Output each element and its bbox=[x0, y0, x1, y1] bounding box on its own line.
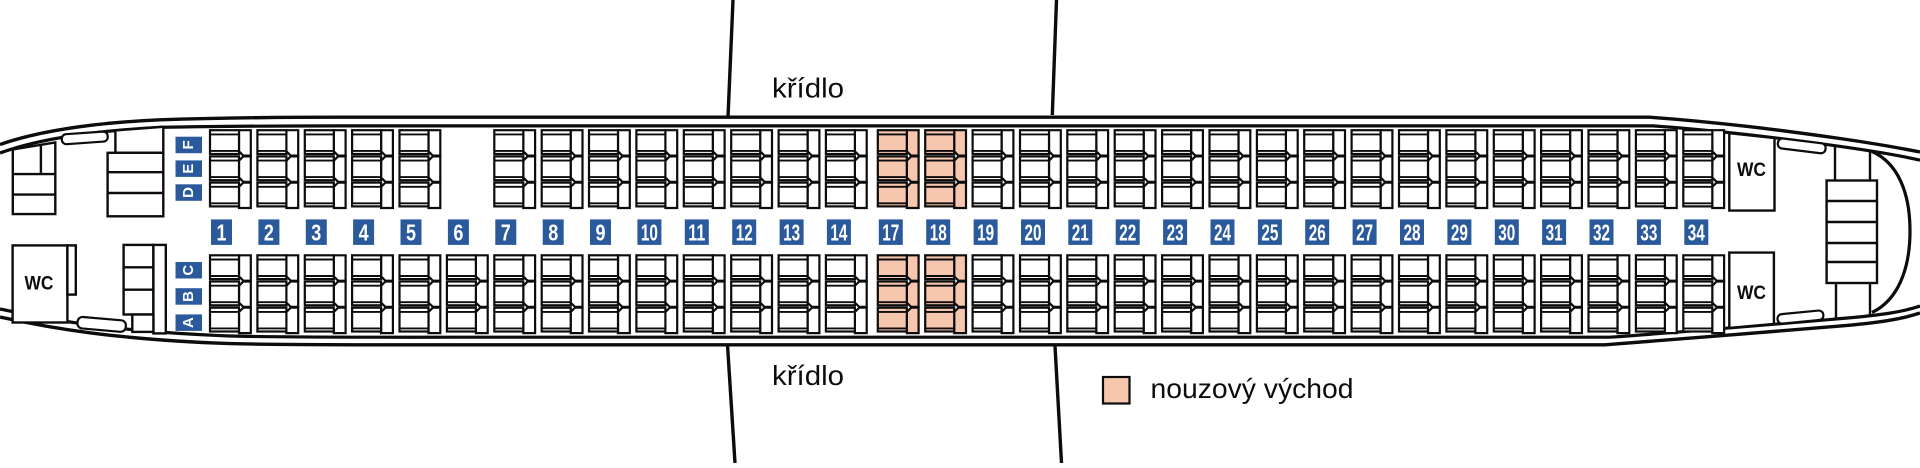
svg-text:C: C bbox=[180, 265, 197, 276]
svg-text:8: 8 bbox=[548, 219, 558, 245]
svg-text:WC: WC bbox=[1737, 283, 1766, 304]
svg-text:25: 25 bbox=[1261, 219, 1278, 245]
svg-text:3: 3 bbox=[311, 219, 321, 245]
svg-text:E: E bbox=[180, 164, 197, 174]
svg-text:30: 30 bbox=[1498, 219, 1515, 245]
svg-text:17: 17 bbox=[882, 219, 899, 245]
svg-text:F: F bbox=[180, 140, 197, 149]
svg-text:1: 1 bbox=[217, 219, 227, 245]
svg-text:nouzový východ: nouzový východ bbox=[1151, 373, 1354, 404]
svg-text:27: 27 bbox=[1356, 219, 1373, 245]
svg-text:26: 26 bbox=[1309, 219, 1326, 245]
svg-text:křídlo: křídlo bbox=[772, 73, 844, 104]
svg-text:10: 10 bbox=[641, 219, 658, 245]
svg-text:21: 21 bbox=[1072, 219, 1089, 245]
svg-text:2: 2 bbox=[264, 219, 274, 245]
svg-text:24: 24 bbox=[1214, 219, 1231, 245]
svg-text:22: 22 bbox=[1119, 219, 1136, 245]
svg-text:33: 33 bbox=[1640, 219, 1657, 245]
svg-text:31: 31 bbox=[1546, 219, 1563, 245]
svg-text:28: 28 bbox=[1404, 219, 1421, 245]
svg-text:křídlo: křídlo bbox=[772, 360, 844, 391]
svg-text:6: 6 bbox=[453, 219, 463, 245]
svg-text:11: 11 bbox=[688, 219, 705, 245]
svg-text:32: 32 bbox=[1593, 219, 1610, 245]
svg-text:D: D bbox=[180, 187, 197, 198]
svg-text:18: 18 bbox=[930, 219, 947, 245]
svg-text:9: 9 bbox=[596, 219, 606, 245]
svg-text:20: 20 bbox=[1025, 219, 1042, 245]
svg-text:7: 7 bbox=[501, 219, 511, 245]
svg-text:5: 5 bbox=[406, 219, 416, 245]
svg-text:WC: WC bbox=[1737, 160, 1766, 181]
svg-text:B: B bbox=[180, 291, 197, 302]
svg-text:12: 12 bbox=[736, 219, 753, 245]
svg-text:4: 4 bbox=[359, 219, 369, 245]
svg-text:A: A bbox=[180, 317, 197, 328]
svg-text:WC: WC bbox=[25, 274, 54, 295]
svg-text:19: 19 bbox=[977, 219, 994, 245]
svg-text:13: 13 bbox=[783, 219, 800, 245]
svg-text:29: 29 bbox=[1451, 219, 1468, 245]
svg-text:23: 23 bbox=[1167, 219, 1184, 245]
svg-text:14: 14 bbox=[830, 219, 847, 245]
svg-text:34: 34 bbox=[1688, 219, 1705, 245]
